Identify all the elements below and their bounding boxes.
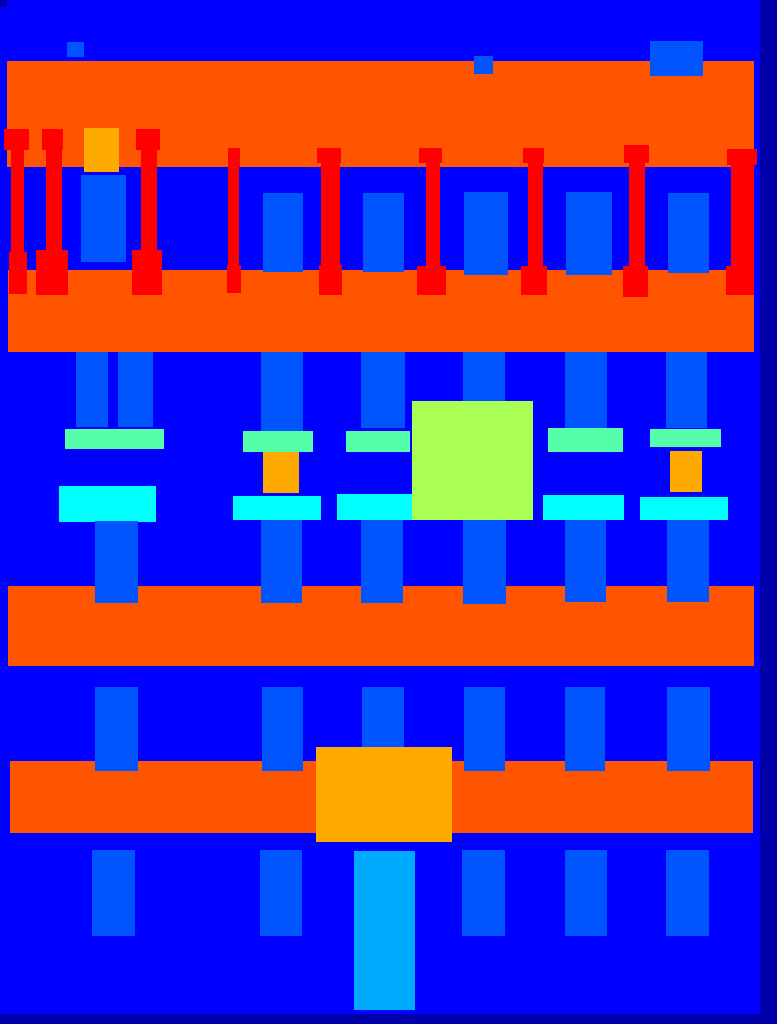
blind-5	[650, 429, 721, 447]
f4-window-5	[666, 850, 709, 936]
sill-1	[59, 486, 156, 522]
pillar-3-cap	[136, 129, 160, 150]
f4-window-4	[565, 850, 607, 936]
blind-3	[346, 431, 410, 452]
pillar-5-stem	[321, 163, 340, 265]
pillar-9-base	[726, 266, 754, 295]
f1-window-4	[464, 192, 508, 275]
pillar-7-base	[521, 266, 547, 295]
f2-window-3	[361, 352, 405, 428]
pillar-7-stem	[528, 163, 543, 266]
background-bottom-band	[0, 1014, 777, 1024]
pillar-5-cap	[317, 148, 341, 163]
molding-top	[84, 128, 119, 172]
molding-mid-2	[670, 451, 702, 492]
blind-1	[65, 429, 164, 449]
attic-window-1	[67, 42, 84, 57]
pillar-2-base	[36, 250, 68, 295]
pillar-4-stem	[228, 167, 239, 265]
background-right-strip	[760, 0, 777, 1024]
pillar-3-base	[132, 250, 162, 295]
sill-3	[337, 494, 412, 520]
f2-window-2	[261, 352, 303, 432]
door	[354, 851, 415, 1010]
f4-window-3	[462, 850, 505, 936]
pillar-9-cap	[727, 149, 757, 165]
f3-window-4	[464, 687, 505, 771]
f1-window-6	[668, 193, 709, 273]
f2-window-6	[666, 352, 707, 428]
pillar-3-stem	[141, 150, 157, 250]
pillar-2-cap	[42, 129, 63, 150]
blind-2	[243, 431, 313, 452]
sill-5	[640, 497, 728, 520]
pillar-1-base	[9, 252, 27, 294]
pillar-1-stem	[11, 150, 24, 252]
pillar-1-cap	[4, 129, 29, 150]
molding-large	[316, 747, 452, 842]
deco-square	[412, 401, 533, 520]
pillar-2-stem	[46, 150, 62, 250]
f2-pier-2	[261, 520, 302, 603]
f2-pier-5	[565, 520, 606, 602]
pillar-8-stem	[629, 163, 645, 266]
f3-window-6	[667, 687, 710, 771]
f3-window-2	[262, 687, 303, 771]
attic-window-3	[650, 41, 703, 76]
sill-4	[543, 495, 624, 520]
f1-window-1	[81, 175, 126, 262]
pillar-8-base	[623, 266, 648, 297]
pillar-9-stem	[731, 165, 754, 266]
f4-window-2	[260, 850, 302, 936]
pillar-6-cap	[419, 148, 442, 163]
f2-pier-1	[95, 521, 138, 603]
f2-pier-4	[463, 520, 506, 604]
f1-window-2	[263, 193, 303, 272]
f2-pier-3	[361, 520, 403, 603]
sill-2	[233, 496, 321, 520]
f1-window-5	[566, 192, 612, 275]
pillar-7-cap	[523, 148, 544, 163]
molding-mid-1	[263, 452, 299, 493]
pillar-6-base	[417, 266, 446, 295]
pillar-8-cap	[624, 145, 649, 163]
pillar-4-cap	[228, 148, 240, 167]
attic-window-2	[474, 56, 493, 74]
f2-window-1a	[76, 352, 108, 427]
f4-window-1	[92, 850, 135, 936]
background-corner-patch	[0, 0, 7, 7]
f3-window-5	[565, 687, 605, 771]
f2-window-5	[565, 352, 607, 428]
f2-window-1b	[118, 352, 153, 427]
f3-window-1	[95, 687, 138, 771]
facade-segmentation-canvas	[0, 0, 777, 1024]
pillar-5-base	[319, 265, 342, 295]
pillar-4-base	[227, 265, 241, 293]
f1-window-3	[363, 193, 404, 272]
blind-4	[548, 428, 623, 452]
pillar-6-stem	[426, 163, 440, 266]
f2-pier-6	[667, 520, 709, 602]
